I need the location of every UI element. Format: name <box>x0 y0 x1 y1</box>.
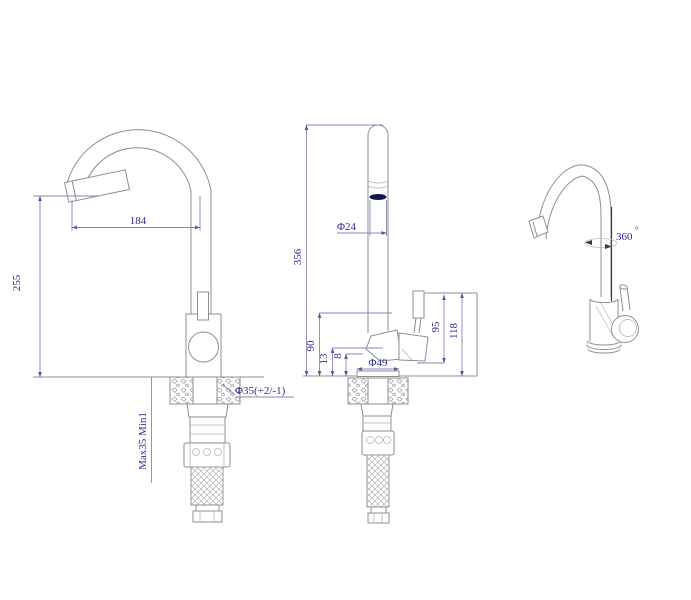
dim-356-label: 356 <box>292 248 304 265</box>
rotation-label: 360 <box>616 231 633 243</box>
dim-mount-label: Max35 Min1 <box>137 412 149 470</box>
degree-symbol: ° <box>635 225 639 235</box>
shank-step <box>361 404 393 416</box>
spout-inner-outline <box>84 148 191 314</box>
handle-base <box>399 333 428 361</box>
handle-stem <box>414 318 416 333</box>
shank <box>190 417 225 443</box>
dim-49-label: Φ49 <box>368 357 388 369</box>
crimp-detail <box>367 437 374 444</box>
shank <box>363 416 391 431</box>
supply-hose <box>367 455 389 507</box>
spout-tip <box>65 170 130 202</box>
handle-stem <box>419 318 421 333</box>
mounting-nut-hatch-right <box>388 378 408 404</box>
mounting-nut-hatch-left <box>348 378 368 404</box>
hose-fitting <box>368 513 389 523</box>
side-view: 255 184 Max35 Min1 Φ35(+2/-1) <box>11 130 294 522</box>
hose-fitting-neck <box>371 507 386 513</box>
handle-lever <box>198 292 209 320</box>
shank-step <box>187 404 228 417</box>
handle-ball <box>189 332 219 362</box>
handle-knob <box>612 316 639 343</box>
dim-24-label: Φ24 <box>337 221 357 233</box>
dim-184-label: 184 <box>130 215 147 227</box>
handle-stem <box>627 287 630 310</box>
hose-fitting <box>193 511 222 522</box>
base-flange <box>357 371 399 377</box>
perspective-view: 360 ° <box>529 165 639 353</box>
spout-inner-outline <box>546 176 601 297</box>
base-flare <box>588 341 620 345</box>
crimp-detail <box>384 437 391 444</box>
crimp-detail <box>376 437 383 444</box>
hose-fitting-neck <box>196 505 219 511</box>
dim-118-label: 118 <box>448 322 460 339</box>
technical-drawing: 255 184 Max35 Min1 Φ35(+2/-1) <box>0 0 691 600</box>
spout-tip <box>529 216 548 238</box>
dim-255-label: 255 <box>11 274 23 291</box>
crimp-detail <box>215 449 222 456</box>
spout-seam <box>368 181 388 183</box>
dim-hole-label: Φ35(+2/-1) <box>235 385 286 397</box>
supply-hose <box>191 467 223 505</box>
body-top-edge <box>590 299 618 303</box>
aerator-outlet <box>370 194 387 200</box>
handle-stem <box>620 288 623 311</box>
spout-column <box>368 125 388 315</box>
dim-8-label: 8 <box>332 353 344 359</box>
crimp-detail <box>204 449 211 456</box>
hose-crimp <box>184 443 230 467</box>
drawing-canvas: 255 184 Max35 Min1 Φ35(+2/-1) <box>0 0 691 600</box>
crimp-detail <box>193 449 200 456</box>
dim-13-label: 13 <box>318 353 330 365</box>
spout-seam <box>368 186 388 188</box>
front-view: 356 Φ24 90 13 8 Φ49 95 118 <box>292 125 477 523</box>
handle-lever <box>413 291 424 318</box>
mounting-nut-hatch-left <box>170 377 193 404</box>
base-ring <box>587 345 621 350</box>
dim-95-label: 95 <box>430 321 442 333</box>
dim-90-label: 90 <box>305 340 317 352</box>
